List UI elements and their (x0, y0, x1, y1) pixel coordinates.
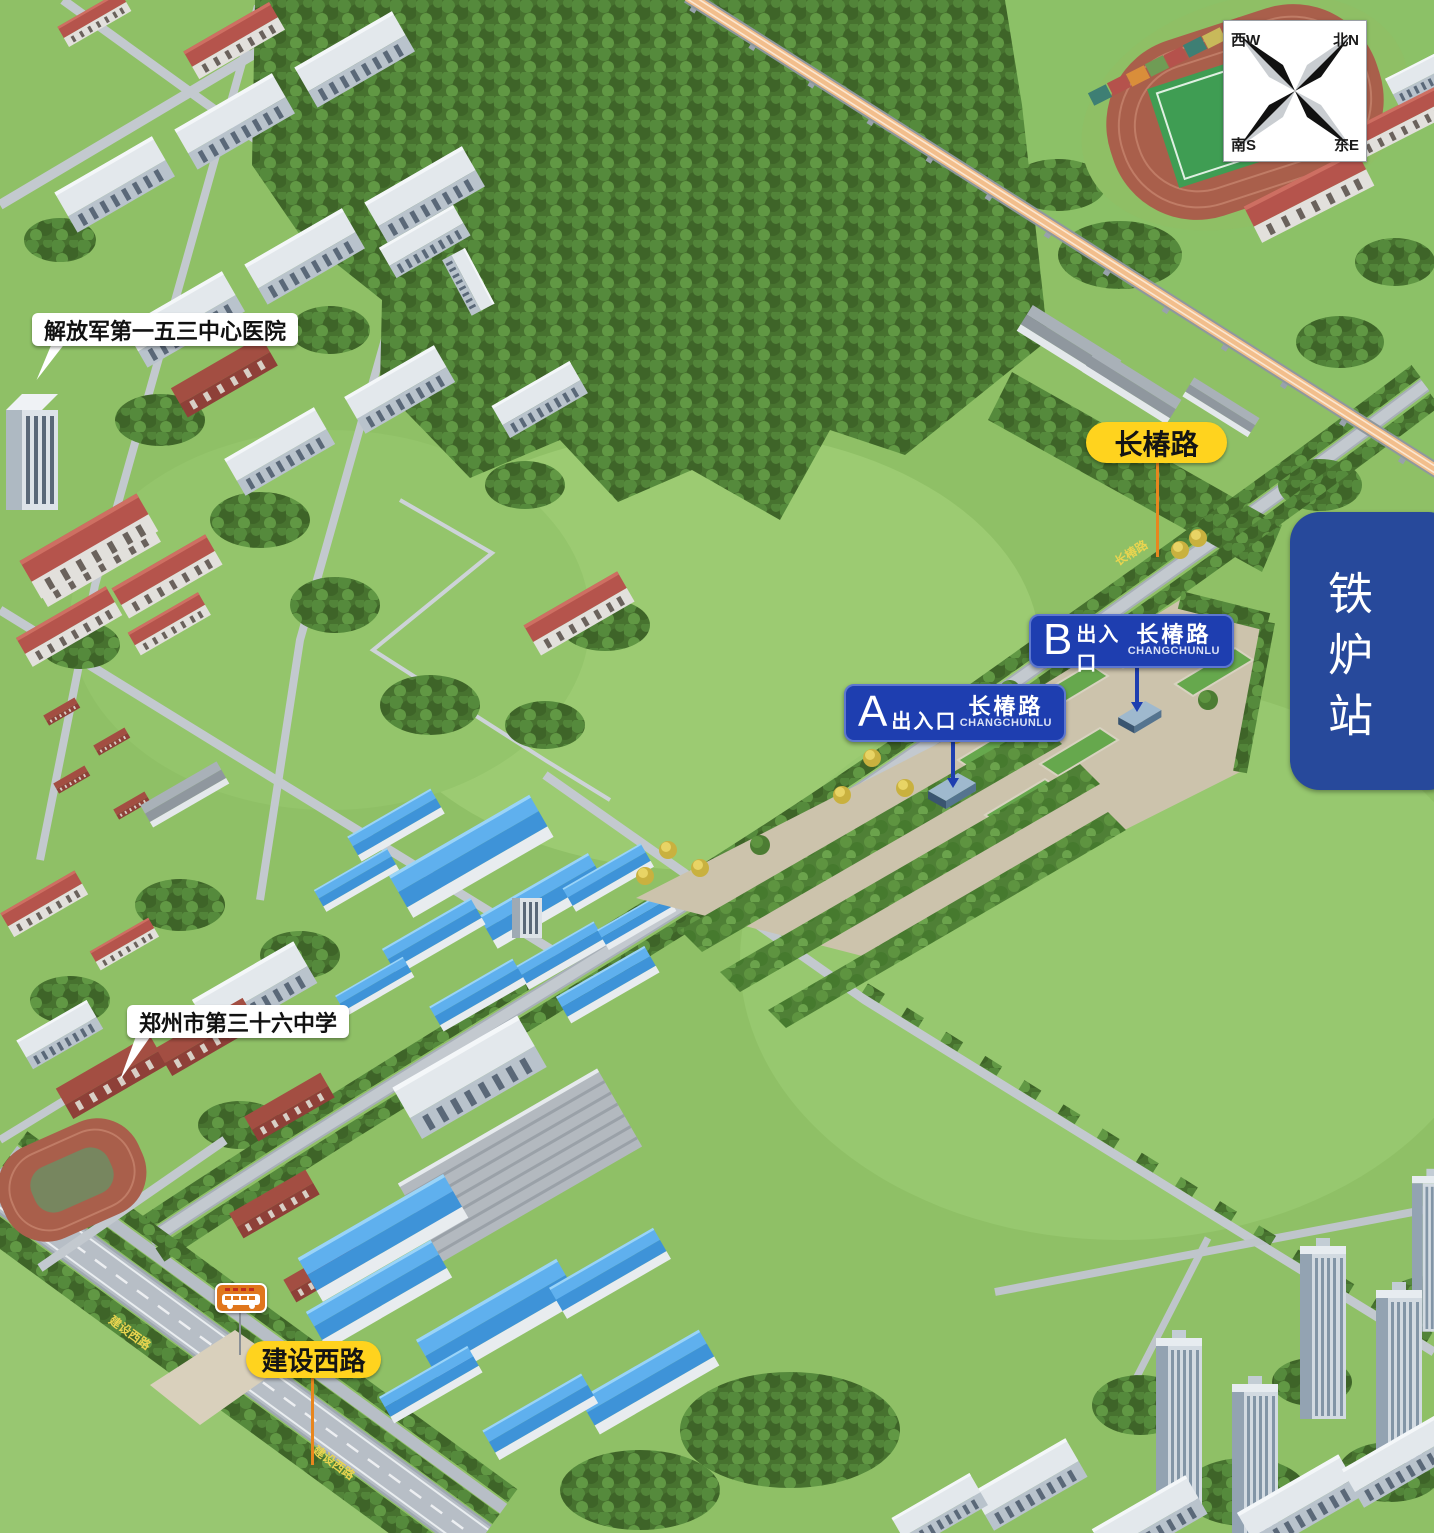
exit-a-road-pinyin: CHANGCHUNLU (960, 718, 1052, 730)
jianshexilu-leader-line (311, 1377, 314, 1465)
compass-west-label: 西W (1231, 29, 1260, 50)
compass-south-label: 南S (1231, 134, 1256, 155)
compass-east-label: 东E (1334, 134, 1359, 155)
station-name: 铁炉站 (1324, 570, 1369, 753)
exit-b-pointer (1135, 667, 1139, 703)
exit-a-pointer (951, 741, 955, 779)
hospital-label-text: 解放军第一五三中心医院 (44, 314, 286, 346)
exit-b-road-pinyin: CHANGCHUNLU (1128, 646, 1220, 658)
road-label-changchunlu: 长椿路 (1086, 422, 1227, 463)
school-label-text: 郑州市第三十六中学 (139, 1006, 337, 1038)
exit-a-letter: A (858, 692, 887, 732)
poi-label-hospital: 解放军第一五三中心医院 (32, 313, 298, 346)
exit-a-entrance-word: 出入口 (891, 705, 957, 734)
exit-a-label: A 出入口 长椿路 CHANGCHUNLU (844, 684, 1066, 742)
changchunlu-leader-line (1156, 462, 1159, 557)
exit-a-road-name: 长椿路 (960, 695, 1052, 718)
exit-b-road-name: 长椿路 (1128, 623, 1220, 646)
exit-b-entrance-word: 出入口 (1076, 618, 1127, 676)
road-label-changchunlu-text: 长椿路 (1114, 423, 1198, 463)
bus-icon (217, 1285, 265, 1311)
road-label-jianshexilu: 建设西路 (246, 1341, 381, 1378)
bus-stop-pole (239, 1313, 241, 1355)
compass-north-label: 北N (1333, 29, 1359, 50)
map-canvas: 长椿路 建设西路 建设西路 (0, 0, 1434, 1533)
poi-label-school: 郑州市第三十六中学 (127, 1005, 349, 1038)
station-name-badge: 铁炉站 (1290, 512, 1434, 790)
road-label-jianshexilu-text: 建设西路 (261, 1341, 365, 1378)
exit-b-letter: B (1043, 620, 1072, 660)
compass: 西W 北N 南S 东E (1223, 20, 1367, 162)
bus-stop-sign-icon (215, 1283, 267, 1313)
exit-b-label: B 出入口 长椿路 CHANGCHUNLU (1029, 614, 1234, 668)
